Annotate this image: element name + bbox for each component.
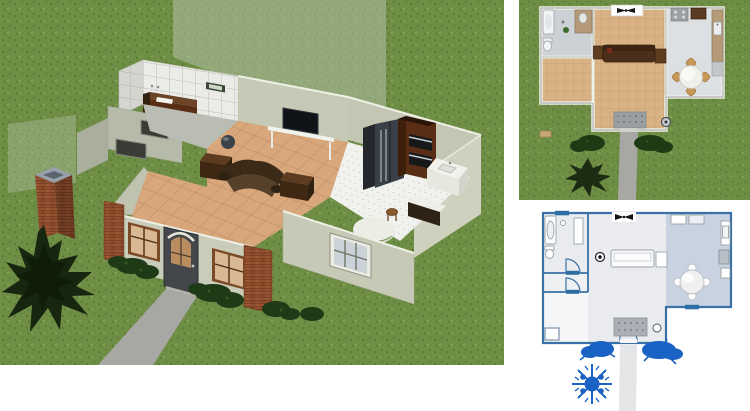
faucet-3d xyxy=(151,85,154,88)
counter-plan xyxy=(712,10,723,62)
bp-sofa xyxy=(611,250,667,267)
stepping-stone-plan xyxy=(540,131,551,137)
range-plan xyxy=(671,8,688,21)
bp-walkway xyxy=(619,345,637,411)
door-knob xyxy=(192,265,195,268)
plant-sphere-3d xyxy=(221,135,235,149)
plan-textured-render xyxy=(519,0,750,200)
bp-light-symbol xyxy=(596,253,605,262)
composite-canvas xyxy=(0,0,750,411)
view-plan-blueprint[interactable] xyxy=(519,208,750,411)
blueprint-render xyxy=(519,208,750,411)
view-3d-dollhouse[interactable] xyxy=(0,0,504,365)
fridge-plan xyxy=(691,8,706,19)
left-room-floor-plan xyxy=(541,57,593,103)
faucet-handle-3d xyxy=(157,86,160,89)
bp-round-item xyxy=(653,324,661,332)
refrigerator-3d xyxy=(363,118,404,190)
round-item-plan xyxy=(662,118,671,127)
ceiling-fan-symbol-plan xyxy=(611,5,643,16)
plant-plan xyxy=(563,27,569,33)
sofa-plan xyxy=(594,45,667,63)
brick-chimney xyxy=(35,167,75,239)
brick-pillar-left xyxy=(104,201,124,263)
toilet-plan xyxy=(544,41,552,51)
bp-closet-box xyxy=(545,328,559,340)
dollhouse-render xyxy=(0,0,504,365)
view-plan-textured[interactable] xyxy=(519,0,750,200)
bp-tree xyxy=(572,364,612,404)
bp-ceiling-fan xyxy=(612,212,636,222)
